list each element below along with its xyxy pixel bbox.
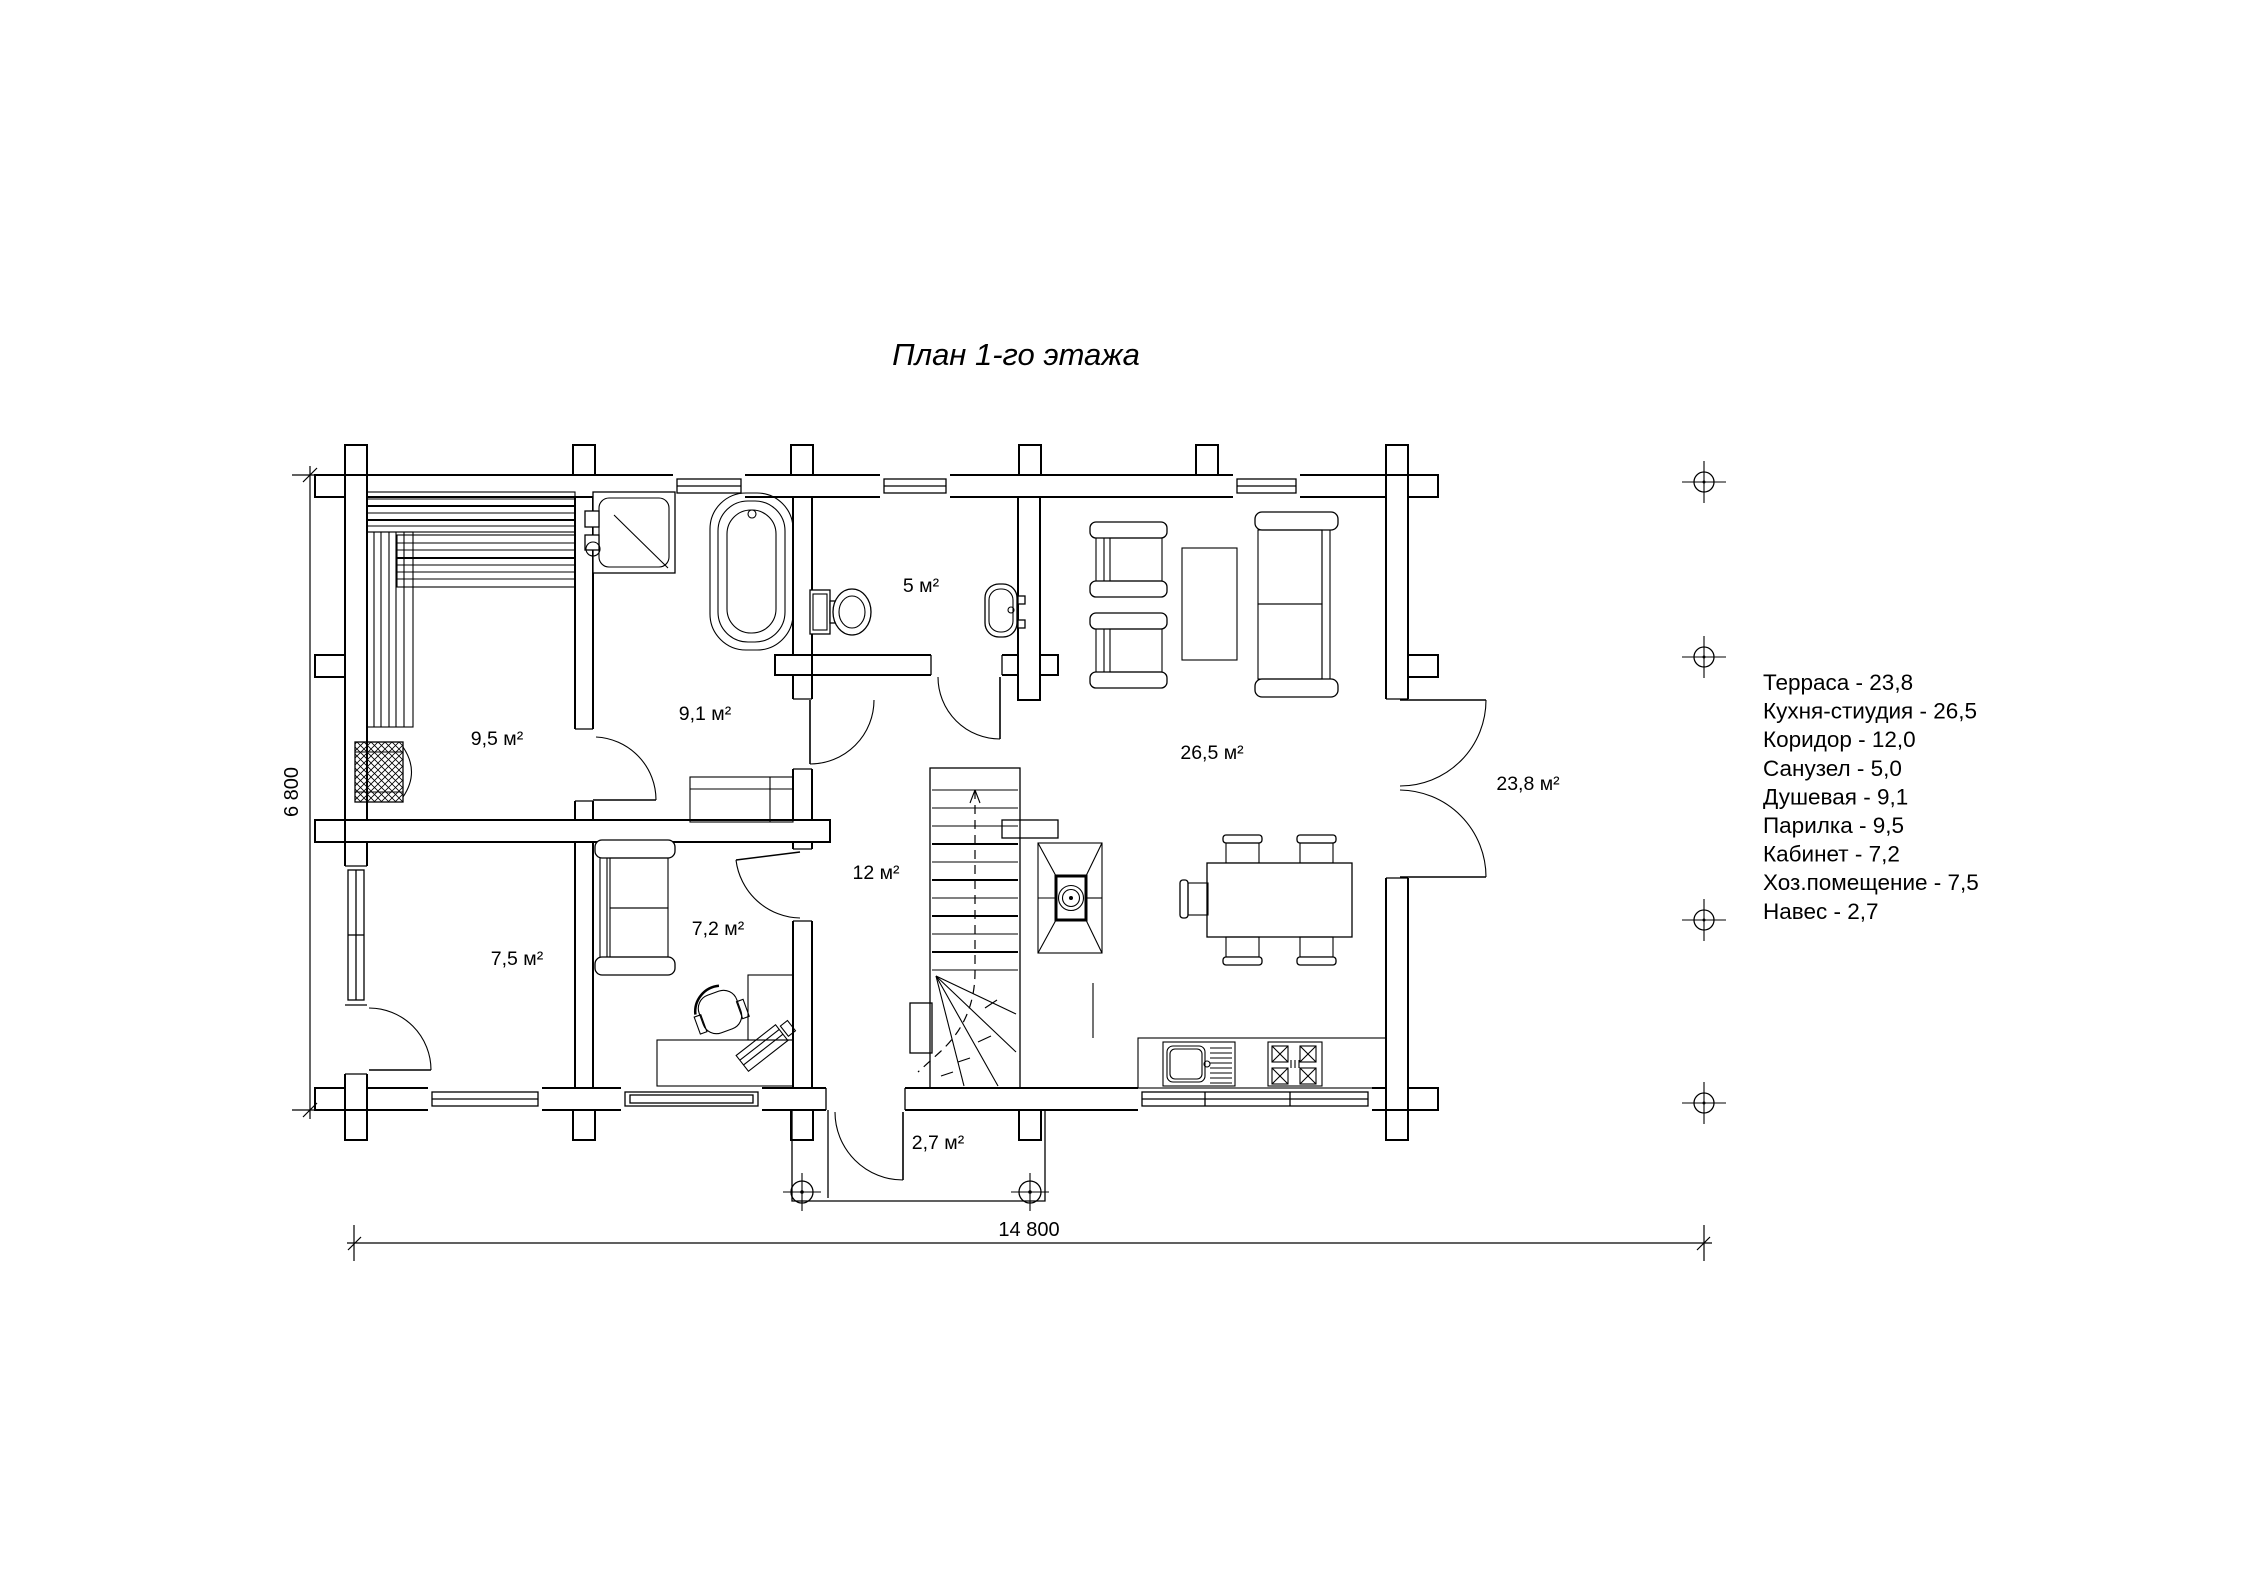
sauna-stove (355, 742, 412, 802)
legend-item: Хоз.помещение - 7,5 (1763, 870, 1979, 895)
windows (348, 479, 1368, 1106)
room-label-kabinet: 7,2 м² (692, 918, 745, 940)
dining-table-set (1180, 835, 1352, 965)
legend: Терраса - 23,8 Кухня-стиудия - 26,5 Кори… (1763, 670, 1979, 924)
office-chair (687, 979, 752, 1040)
door-terrace-french (1400, 700, 1486, 877)
office-sofa (595, 840, 675, 975)
wall-shower-divider (793, 497, 812, 1088)
dining-chair (1223, 835, 1262, 863)
room-label-terrace: 23,8 м² (1496, 773, 1560, 795)
floor-plan-page: План 1-го этажа (0, 0, 2245, 1587)
legend-item: Санузел - 5,0 (1763, 756, 1902, 781)
door-entrance (835, 1112, 903, 1180)
axis-marker (1682, 636, 1726, 678)
dining-table (1207, 863, 1352, 937)
dining-chair (1297, 835, 1336, 863)
wall-middle (345, 820, 830, 842)
room-label-naves: 2,7 м² (912, 1132, 965, 1154)
stove-burner (1300, 1046, 1316, 1062)
legend-item: Кухня-стиудия - 26,5 (1763, 699, 1977, 724)
room-label-khoz: 7,5 м² (491, 948, 544, 970)
axis-marker (1682, 461, 1726, 503)
legend-item: Кабинет - 7,2 (1763, 842, 1900, 867)
axis-marker (1682, 899, 1726, 941)
office-keyboard (736, 1017, 797, 1071)
stove-burner (1272, 1046, 1288, 1062)
office-desk (657, 975, 793, 1086)
sauna-benches (367, 492, 575, 727)
room-label-sanuzel: 5 м² (903, 575, 940, 597)
room-label-parilka: 9,5 м² (471, 728, 524, 750)
drawing-title: План 1-го этажа (892, 337, 1140, 372)
door-shower (810, 700, 874, 764)
stairs (910, 768, 1058, 1088)
walls (345, 475, 1408, 1110)
kitchen-sink (1163, 1042, 1235, 1086)
dimension-height-value: 6 800 (281, 767, 303, 817)
door-office (736, 852, 800, 918)
legend-item: Коридор - 12,0 (1763, 727, 1916, 752)
axis-marker (1682, 1082, 1726, 1124)
room-label-koridor: 12 м² (852, 862, 900, 884)
legend-item: Терраса - 23,8 (1763, 670, 1913, 695)
coffee-table (1182, 548, 1237, 660)
shower-cabin (585, 492, 675, 573)
stove-burner (1300, 1068, 1316, 1084)
legend-item: Навес - 2,7 (1763, 899, 1879, 924)
dining-chair (1297, 937, 1336, 965)
porch-column (1011, 1173, 1049, 1211)
room-label-kitchen-studio: 26,5 м² (1180, 742, 1244, 764)
wall-bathroom-south (812, 655, 1040, 675)
dining-chair (1223, 937, 1262, 965)
kitchen-counter (1093, 983, 1386, 1088)
bathtub (710, 493, 793, 650)
legend-item: Душевая - 9,1 (1763, 784, 1908, 809)
dimension-width-value: 14 800 (998, 1219, 1059, 1241)
shower-bench (690, 777, 793, 822)
armchair-2 (1090, 613, 1167, 688)
toilet (810, 589, 871, 635)
dimension-horizontal: 14 800 (347, 1219, 1712, 1261)
stove-burner (1272, 1068, 1288, 1084)
door-bathroom (938, 677, 1000, 739)
axis-markers (1682, 461, 1726, 1124)
door-sauna (593, 737, 656, 800)
room-label-dushevaya: 9,1 м² (679, 703, 732, 725)
floor-plan-drawing: План 1-го этажа (0, 0, 2245, 1587)
wall-openings (341, 473, 1410, 1112)
log-end-stubs (315, 445, 1438, 1140)
porch-column (783, 1173, 821, 1211)
fireplace (1038, 843, 1102, 953)
sofa (1255, 512, 1338, 697)
legend-item: Парилка - 9,5 (1763, 813, 1904, 838)
dimension-vertical: 6 800 (281, 466, 328, 1119)
door-utility-exterior (369, 1008, 431, 1070)
dining-chair (1180, 880, 1208, 918)
armchair-1 (1090, 522, 1167, 597)
entrance-porch (783, 1110, 1049, 1211)
kitchen-stove (1268, 1042, 1322, 1086)
